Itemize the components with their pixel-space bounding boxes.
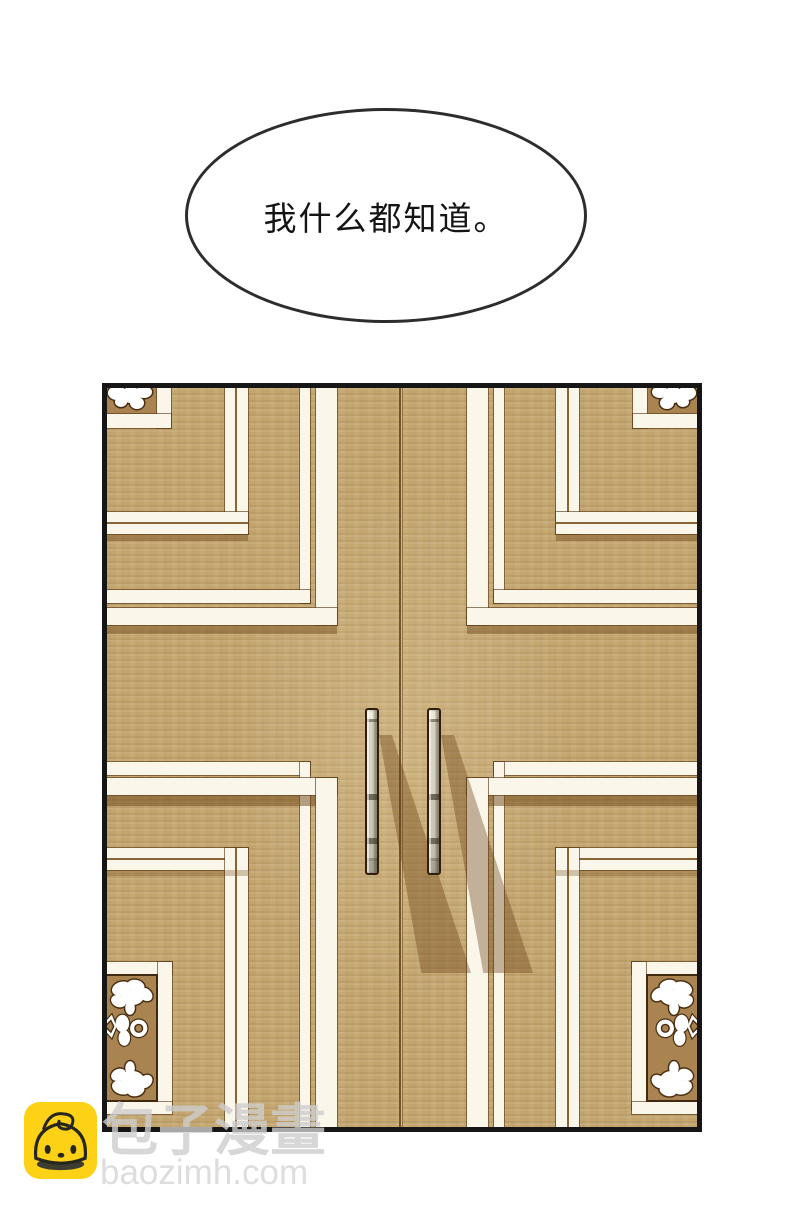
molding-band (633, 414, 697, 428)
molding-shadow (488, 795, 697, 806)
watermark-site-url: baozimh.com (100, 1155, 308, 1192)
molding-band (300, 388, 310, 603)
molding-band (225, 848, 248, 1127)
molding-band (494, 762, 697, 775)
watermark: 包子漫畫 baozimh.com (0, 1095, 800, 1213)
molding-band (556, 512, 697, 534)
carved-floral-corner-large (107, 974, 158, 1102)
molding-band (107, 414, 171, 428)
floral-carving-icon (107, 388, 157, 414)
molding-shadow (107, 534, 248, 541)
watermark-site-name: 包子漫畫 (102, 1102, 326, 1161)
molding-shadow (556, 534, 697, 541)
molding-band (467, 388, 488, 625)
molding-band (107, 778, 337, 795)
floral-carving-icon (647, 388, 697, 414)
door-handle-left (365, 708, 379, 875)
floral-carving-icon (107, 976, 156, 1100)
baozi-bun-icon (24, 1102, 97, 1179)
molding-band (107, 762, 310, 775)
molding-band (494, 388, 504, 603)
molding-band (158, 962, 172, 1110)
molding-band (467, 778, 697, 795)
molding-band (316, 388, 337, 625)
molding-band (300, 762, 310, 1127)
carved-floral-corner-small (107, 388, 159, 416)
speech-bubble: 我什么都知道。 (185, 108, 587, 323)
door-illustration-panel (102, 383, 702, 1132)
molding-band (107, 512, 248, 534)
carved-floral-corner-large (646, 974, 697, 1102)
carved-floral-corner-small (645, 388, 697, 416)
molding-band (556, 848, 579, 1127)
molding-shadow (107, 625, 337, 634)
molding-band (107, 608, 337, 625)
speech-bubble-text: 我什么都知道。 (264, 192, 509, 240)
molding-band (316, 778, 337, 1127)
molding-band (467, 608, 697, 625)
molding-band (107, 590, 310, 603)
door-handle-right (427, 708, 441, 875)
door-left (107, 388, 402, 1127)
molding-band (632, 962, 646, 1110)
molding-shadow (107, 870, 248, 876)
molding-shadow (107, 795, 316, 806)
molding-band (494, 590, 697, 603)
door-illustration (107, 388, 697, 1127)
molding-shadow (467, 625, 697, 634)
floral-carving-icon (648, 976, 697, 1100)
molding-shadow (556, 870, 697, 876)
